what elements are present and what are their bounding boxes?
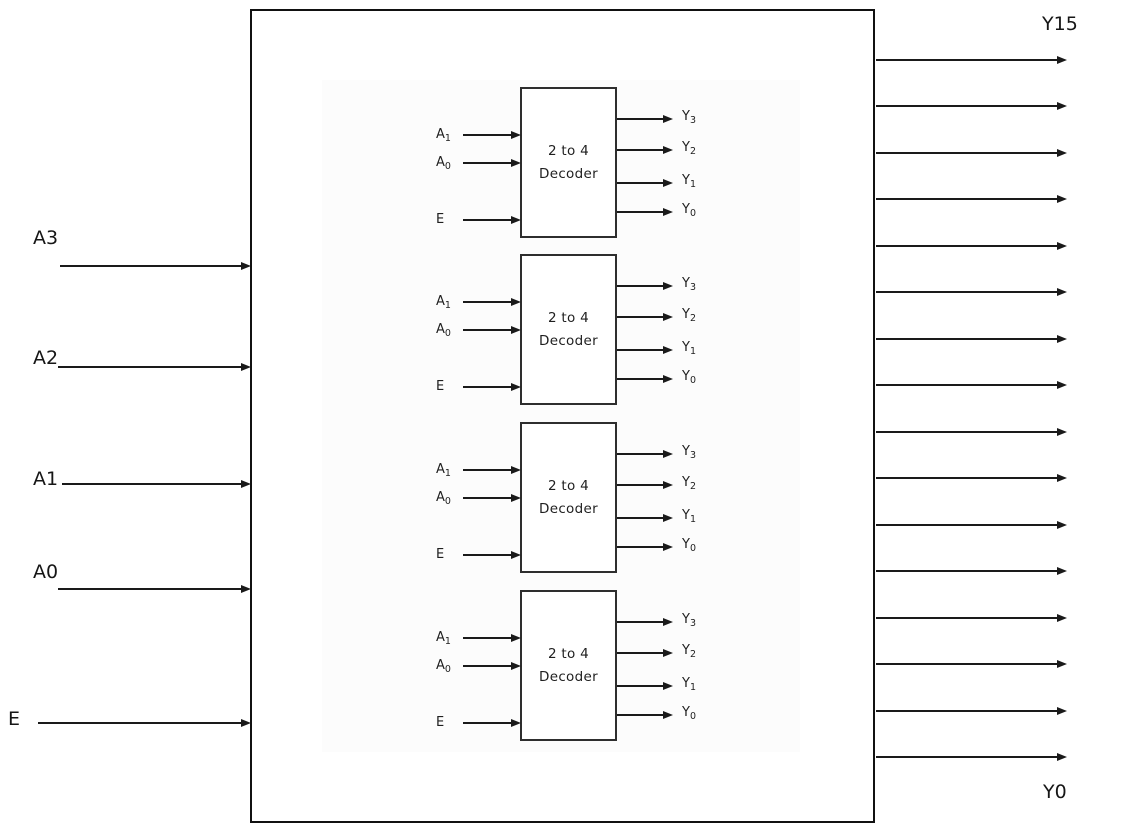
decoder-block-3-title-line2: Decoder [539,501,598,517]
decoder-block-1-output-arrow-y0 [617,211,663,213]
output-arrow-y6 [876,477,1057,479]
decoder-block-2-input-a0: A0 [436,322,451,341]
decoder-block-2-output-y3-base: Y [682,276,690,291]
decoder-block-2-title-line1: 2 to 4 [548,310,589,326]
decoder-block-4-output-y2: Y2 [682,643,696,662]
decoder-block-3-input-e: E [436,547,444,562]
output-arrow-y4 [876,570,1057,572]
decoder-block-1-output-y1-sub: 1 [690,179,696,190]
decoder-block-3-output-y1-base: Y [682,508,690,523]
output-label-y0: Y0 [1043,781,1067,803]
decoder-block-4-output-y1-base: Y [682,676,690,691]
output-arrow-y3 [876,617,1057,619]
decoder-block-4-title-line2: Decoder [539,669,598,685]
input-label-a2: A2 [33,347,58,369]
decoder-block-4-output-y0-base: Y [682,705,690,720]
input-arrow-e [38,722,241,724]
decoder-block-3-output-arrow-y1 [617,517,663,519]
decoder-block-1-output-arrow-y2 [617,149,663,151]
decoder-block-1-output-arrow-y3 [617,118,663,120]
output-arrow-y9 [876,338,1057,340]
input-arrow-a2 [58,366,241,368]
decoder-block-2-output-y2: Y2 [682,307,696,326]
output-arrow-y14 [876,105,1057,107]
output-arrow-y7 [876,431,1057,433]
decoder-block-3-output-y2-base: Y [682,475,690,490]
decoder-block-4-input-e-base: E [436,715,444,730]
decoder-block-4-output-arrow-y1 [617,685,663,687]
decoder-block-3-box: 2 to 4Decoder [520,422,617,573]
decoder-block-3-input-a0-base: A [436,490,445,505]
decoder-block-2-input-e: E [436,379,444,394]
decoder-block-1-output-arrow-y1 [617,182,663,184]
input-label-a1: A1 [33,468,58,490]
decoder-block-2-input-arrow-e [463,386,511,388]
decoder-block-4-input-arrow-a1 [463,637,511,639]
decoder-block-4-title-line1: 2 to 4 [548,646,589,662]
decoder-block-4-output-y0-sub: 0 [690,711,696,722]
decoder-block-4-output-y2-sub: 2 [690,649,696,660]
decoder-block-1-output-y1: Y1 [682,173,696,192]
decoder-block-2-output-y2-base: Y [682,307,690,322]
decoder-block-3-output-y0: Y0 [682,537,696,556]
decoder-block-1-input-a1: A1 [436,127,451,146]
decoder-block-3-output-y1-sub: 1 [690,514,696,525]
decoder-block-1-output-y0: Y0 [682,202,696,221]
input-arrow-a1 [62,483,241,485]
decoder-block-1-input-a0-sub: 0 [445,161,451,172]
decoder-block-2-output-y0: Y0 [682,369,696,388]
decoder-block-1-output-y0-sub: 0 [690,208,696,219]
decoder-block-2-output-y0-sub: 0 [690,375,696,386]
output-arrow-y0 [876,756,1057,758]
decoder-block-1-input-arrow-a1 [463,134,511,136]
decoder-block-2-input-a0-sub: 0 [445,328,451,339]
decoder-block-4-output-arrow-y3 [617,621,663,623]
decoder-block-2-output-y3: Y3 [682,276,696,295]
decoder-block-3-input-a1-base: A [436,462,445,477]
decoder-block-1-output-y2-sub: 2 [690,146,696,157]
decoder-block-4-input-e: E [436,715,444,730]
decoder-block-4-input-a0-sub: 0 [445,664,451,675]
output-arrow-y13 [876,152,1057,154]
input-label-a3: A3 [33,227,58,249]
decoder-block-3-output-arrow-y2 [617,484,663,486]
decoder-block-4-output-y3-base: Y [682,612,690,627]
decoder-block-2-output-y3-sub: 3 [690,282,696,293]
decoder-block-1-input-e: E [436,212,444,227]
output-arrow-y5 [876,524,1057,526]
decoder-block-3-input-a0-sub: 0 [445,496,451,507]
decoder-block-3-output-y3-base: Y [682,444,690,459]
decoder-block-4-output-y2-base: Y [682,643,690,658]
decoder-block-1-title-line2: Decoder [539,166,598,182]
decoder-block-1-input-a0: A0 [436,155,451,174]
decoder-block-2-output-arrow-y0 [617,378,663,380]
decoder-block-2-output-arrow-y1 [617,349,663,351]
decoder-block-4-input-a0: A0 [436,658,451,677]
input-label-a0: A0 [33,561,58,583]
decoder-block-2-output-arrow-y2 [617,316,663,318]
decoder-block-2-input-a1-sub: 1 [445,300,451,311]
decoder-block-4-output-y3: Y3 [682,612,696,631]
decoder-block-1-output-y0-base: Y [682,202,690,217]
decoder-block-3-input-a1: A1 [436,462,451,481]
decoder-block-1-output-y3: Y3 [682,109,696,128]
decoder-block-1-output-y2-base: Y [682,140,690,155]
decoder-block-2-input-a1: A1 [436,294,451,313]
decoder-block-3-output-y1: Y1 [682,508,696,527]
decoder-block-2-output-y1-sub: 1 [690,346,696,357]
decoder-block-2-output-y1-base: Y [682,340,690,355]
output-label-y15: Y15 [1042,13,1078,35]
decoder-block-2-box: 2 to 4Decoder [520,254,617,405]
decoder-block-3-input-arrow-a0 [463,497,511,499]
decoder-block-2-output-y2-sub: 2 [690,313,696,324]
decoder-block-1-output-y2: Y2 [682,140,696,159]
input-arrow-a3 [60,265,241,267]
output-arrow-y12 [876,198,1057,200]
decoder-block-2-input-arrow-a0 [463,329,511,331]
decoder-block-3-input-arrow-e [463,554,511,556]
decoder-block-2-input-a0-base: A [436,322,445,337]
decoder-block-3-input-a0: A0 [436,490,451,509]
decoder-block-4-output-y3-sub: 3 [690,618,696,629]
decoder-block-1-box: 2 to 4Decoder [520,87,617,238]
decoder-block-4-output-y1-sub: 1 [690,682,696,693]
decoder-block-3-input-arrow-a1 [463,469,511,471]
decoder-block-3-title-line1: 2 to 4 [548,478,589,494]
decoder-block-2-output-arrow-y3 [617,285,663,287]
decoder-block-1-input-arrow-a0 [463,162,511,164]
decoder-block-1-input-a1-base: A [436,127,445,142]
decoder-block-2-input-arrow-a1 [463,301,511,303]
decoder-block-4-output-arrow-y2 [617,652,663,654]
decoder-block-3-output-y2: Y2 [682,475,696,494]
input-arrow-a0 [58,588,241,590]
decoder-block-3-output-y3-sub: 3 [690,450,696,461]
decoder-block-3-input-a1-sub: 1 [445,468,451,479]
input-label-e: E [8,708,20,730]
decoder-block-1-output-y3-base: Y [682,109,690,124]
decoder-block-4-output-y1: Y1 [682,676,696,695]
decoder-block-3-output-y2-sub: 2 [690,481,696,492]
decoder-block-4-input-a1-base: A [436,630,445,645]
decoder-block-3-output-y0-base: Y [682,537,690,552]
decoder-block-4-input-arrow-a0 [463,665,511,667]
decoder-block-4-output-arrow-y0 [617,714,663,716]
decoder-block-1-input-a0-base: A [436,155,445,170]
output-arrow-y10 [876,291,1057,293]
output-arrow-y1 [876,710,1057,712]
decoder-block-3-input-e-base: E [436,547,444,562]
decoder-block-4-output-y0: Y0 [682,705,696,724]
output-arrow-y8 [876,384,1057,386]
decoder-block-3-output-arrow-y3 [617,453,663,455]
decoder-block-4-input-a0-base: A [436,658,445,673]
decoder-block-2-title-line2: Decoder [539,333,598,349]
decoder-block-2-output-y1: Y1 [682,340,696,359]
decoder-block-1-input-arrow-e [463,219,511,221]
output-arrow-y15 [876,59,1057,61]
decoder-block-3-output-y0-sub: 0 [690,543,696,554]
output-arrow-y2 [876,663,1057,665]
decoder-block-1-output-y1-base: Y [682,173,690,188]
output-arrow-y11 [876,245,1057,247]
decoder-block-3-output-y3: Y3 [682,444,696,463]
decoder-block-3-output-arrow-y0 [617,546,663,548]
decoder-block-4-box: 2 to 4Decoder [520,590,617,741]
decoder-diagram: Y15 Y0 A3A2A1A0E2 to 4DecoderA1A0EY3Y2Y1… [0,0,1138,830]
decoder-block-1-output-y3-sub: 3 [690,115,696,126]
decoder-block-1-input-e-base: E [436,212,444,227]
decoder-block-1-title-line1: 2 to 4 [548,143,589,159]
decoder-block-2-input-a1-base: A [436,294,445,309]
decoder-block-4-input-a1-sub: 1 [445,636,451,647]
decoder-block-2-input-e-base: E [436,379,444,394]
decoder-block-4-input-a1: A1 [436,630,451,649]
decoder-block-2-output-y0-base: Y [682,369,690,384]
decoder-block-1-input-a1-sub: 1 [445,133,451,144]
decoder-block-4-input-arrow-e [463,722,511,724]
